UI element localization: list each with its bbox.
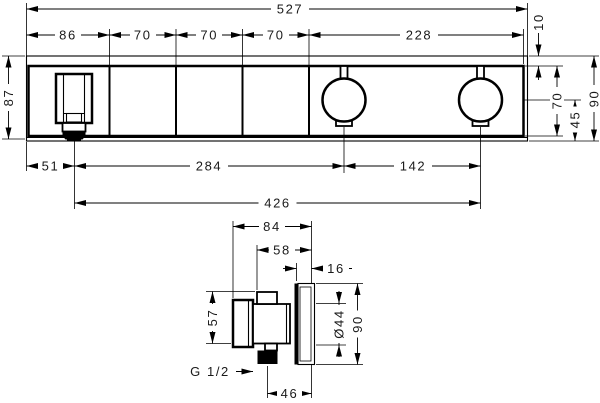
dim-label-left-height: 87 <box>1 89 16 107</box>
dimension-57: 57 <box>205 292 220 344</box>
side-top-tab <box>257 292 277 304</box>
wall-plate <box>296 284 314 365</box>
dim-label-top-gap: 10 <box>531 13 546 31</box>
dim-label-plate-height: 90 <box>350 315 365 333</box>
dimension-45: 45 <box>568 100 583 141</box>
dim-label-total-width: 527 <box>277 2 304 17</box>
dimension-426: 426 <box>75 196 481 211</box>
dim-label-center-to-bottom: 45 <box>568 111 583 129</box>
dim-label-seg-70c: 70 <box>267 28 285 43</box>
technical-drawing-page: 527 86 70 70 70 228 10 87 <box>0 0 600 403</box>
dim-label-knob-gap: 142 <box>400 159 427 174</box>
dim-label-spout-left: 51 <box>42 159 60 174</box>
dimension-84: 84 <box>233 219 312 234</box>
dimension-16: 16 <box>283 261 352 276</box>
dimension-segments: 86 70 70 70 228 <box>27 28 524 43</box>
dimension-58: 58 <box>257 243 312 258</box>
dimension-10: 10 <box>531 13 546 80</box>
dimension-bottom-row: 51 284 142 <box>27 159 481 174</box>
dim-label-seg-70a: 70 <box>134 28 152 43</box>
dim-label-body-depth: 58 <box>273 243 291 258</box>
dim-label-plate-gap: 16 <box>327 261 345 276</box>
spout-outlet <box>63 123 86 142</box>
side-view-module <box>233 284 315 365</box>
dim-label-right-height: 90 <box>587 90 600 108</box>
dimension-90-right: 90 <box>587 56 600 141</box>
dim-label-thread: G 1/2 <box>190 364 230 379</box>
dim-label-overall-bottom: 426 <box>264 196 291 211</box>
dimension-46: 46 <box>268 386 312 401</box>
dimension-o44: Ø44 <box>332 291 347 357</box>
dim-label-seg-70b: 70 <box>200 28 218 43</box>
dimension-drawing: 527 86 70 70 70 228 10 87 <box>0 0 600 403</box>
dimension-90-side: 90 <box>350 284 365 365</box>
dimension-527: 527 <box>27 2 528 17</box>
dimension-87: 87 <box>1 56 16 139</box>
dim-label-face-height: 70 <box>550 92 565 110</box>
dimension-thread: G 1/2 <box>190 364 253 379</box>
dimension-70-right: 70 <box>550 66 565 136</box>
threaded-connector <box>258 351 278 365</box>
side-body <box>253 304 290 344</box>
dim-label-flange-diameter: Ø44 <box>332 309 347 338</box>
square-handle <box>56 74 92 123</box>
dim-label-outlet-to-plate: 46 <box>281 386 299 401</box>
dim-label-body-height: 57 <box>205 309 220 327</box>
front-view-panel <box>27 56 528 142</box>
aerator <box>63 132 86 140</box>
dim-label-seg-228: 228 <box>406 28 433 43</box>
side-bottom-tab <box>265 344 277 351</box>
dim-label-total-depth: 84 <box>263 219 281 234</box>
panel-inner-face <box>29 66 524 136</box>
dim-label-spout-to-knob: 284 <box>196 159 223 174</box>
side-knob <box>233 300 253 347</box>
dim-label-seg-86: 86 <box>59 28 77 43</box>
